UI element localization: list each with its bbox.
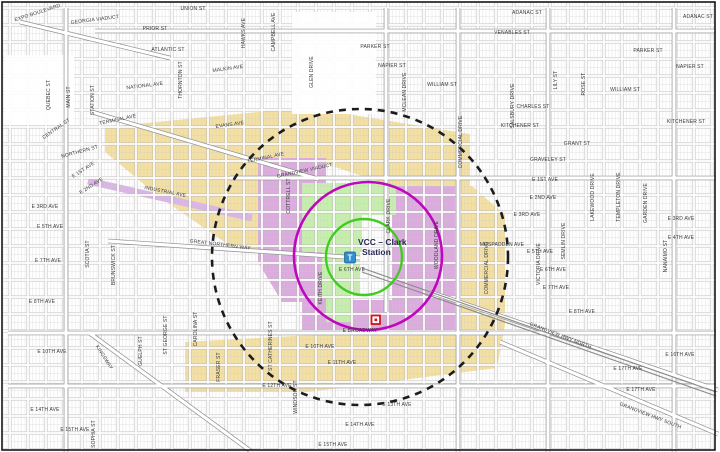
- street-label: E 12TH AVE: [262, 383, 292, 389]
- street-label: CAROLINA ST: [193, 312, 199, 347]
- street-label: COMMERCIAL DRIVE: [484, 241, 490, 294]
- station-icon-letter: T: [348, 254, 353, 263]
- street-label: E BROADWAY: [343, 328, 378, 334]
- street-label: KEITH DRIVE: [318, 271, 324, 305]
- street-label: WILLIAM ST: [427, 82, 457, 88]
- street-label: GLEN DRIVE: [309, 56, 315, 88]
- station-name-line1: VCC – Clark: [358, 237, 407, 247]
- street-label: BRUNSWICK ST: [111, 245, 117, 285]
- street-label: QUEBEC ST: [46, 80, 52, 110]
- street-label: E 15TH AVE: [318, 442, 348, 448]
- street-label: E 6TH AVE: [540, 267, 567, 273]
- street-label: SEMLIN DRIVE: [561, 222, 567, 260]
- street-label: LAKEWOOD DRIVE: [590, 173, 596, 221]
- street-label: WILLIAM ST: [610, 87, 640, 93]
- street-label: CAMPBELL AVE: [271, 12, 277, 52]
- street-label: E 17TH AVE: [626, 387, 656, 393]
- street-label: E 7TH AVE: [543, 285, 570, 291]
- street-label: E 10TH AVE: [305, 344, 335, 350]
- street-label: NAPIER ST: [378, 63, 406, 69]
- street-label: E 3RD AVE: [514, 212, 541, 218]
- street-label: ATLANTIC ST: [151, 47, 184, 53]
- street-label: STATION ST: [90, 85, 96, 115]
- street-label: E 3RD AVE: [32, 204, 59, 210]
- street-label: NANAIMO ST: [663, 240, 669, 273]
- street-label: E 8TH AVE: [569, 309, 596, 315]
- street-label: COTTRELL ST: [286, 178, 292, 213]
- street-label: E 17TH AVE: [613, 366, 643, 372]
- street-label: E 16TH AVE: [665, 352, 695, 358]
- street-label: PRIOR ST: [143, 26, 168, 32]
- street-label: MAIN ST: [66, 86, 72, 107]
- street-label: ADANAC ST: [683, 14, 713, 20]
- street-label: CHARLES ST: [517, 104, 550, 110]
- street-label: E 3RD AVE: [668, 216, 695, 222]
- street-label: WOODLAND DRIVE: [434, 220, 440, 269]
- street-label: E 10TH AVE: [37, 349, 67, 355]
- street-label: THORNTON ST: [178, 61, 184, 99]
- street-label: SALSBURY DRIVE: [510, 83, 516, 129]
- street-label: COMMERCIAL DRIVE: [458, 115, 464, 168]
- street-label: E 5TH AVE: [37, 224, 64, 230]
- street-label: UNION ST: [180, 6, 205, 12]
- street-label: E 14TH AVE: [345, 422, 375, 428]
- street-label: VICTORIA DRIVE: [536, 242, 542, 285]
- street-label: ST GEORGE ST: [163, 315, 169, 354]
- street-label: GRANT ST: [564, 141, 590, 147]
- street-label: E 4TH AVE: [668, 235, 695, 241]
- street-label: E 2ND AVE: [530, 195, 557, 201]
- skytrain-station-icon: T: [345, 252, 356, 263]
- street-label: GARDEN DRIVE: [643, 183, 649, 223]
- street-label: E 6TH AVE: [339, 267, 366, 273]
- street-label: SOPHIA ST: [91, 420, 97, 448]
- street-label: ROSE ST: [581, 73, 587, 96]
- street-label: WINDSOR ST: [293, 380, 299, 413]
- street-label: E 7TH AVE: [35, 258, 62, 264]
- street-label: TEMPLETON DRIVE: [616, 172, 622, 222]
- station-area-map: T VCC – Clark Station EXPO BOULEVARDGEOR…: [0, 0, 720, 452]
- red-square-marker: [372, 316, 381, 325]
- street-label: E 8TH AVE: [29, 299, 56, 305]
- street-label: E 1ST AVE: [532, 177, 558, 183]
- street-label: NAPIER ST: [676, 64, 704, 70]
- street-label: E 13TH AVE: [382, 402, 412, 408]
- street-label: E 15TH AVE: [60, 427, 90, 433]
- street-label: GUELPH ST: [138, 336, 144, 366]
- street-label: ADANAC ST: [512, 10, 542, 16]
- street-label: ST CATHERINES ST: [268, 321, 274, 371]
- street-label: FRASER ST: [216, 352, 222, 381]
- street-label: CLARK DRIVE: [386, 198, 392, 234]
- street-label: VENABLES ST: [494, 30, 530, 36]
- map-canvas: T VCC – Clark Station EXPO BOULEVARDGEOR…: [0, 0, 720, 452]
- street-label: E 14TH AVE: [30, 407, 60, 413]
- street-label: KITCHENER ST: [667, 119, 705, 125]
- street-label: PARKER ST: [633, 48, 662, 54]
- street-label: KITCHENER ST: [501, 123, 539, 129]
- street-label: LILY ST: [553, 71, 559, 90]
- station-name-line2: Station: [362, 247, 391, 257]
- street-label: SCOTIA ST: [85, 240, 91, 267]
- street-label: MCLEAN DRIVE: [402, 72, 408, 112]
- street-label: PARKER ST: [360, 44, 389, 50]
- street-label: E 11TH AVE: [328, 360, 357, 366]
- street-label: HAWKS AVE: [241, 17, 247, 48]
- street-label: GRAVELEY ST: [530, 157, 566, 163]
